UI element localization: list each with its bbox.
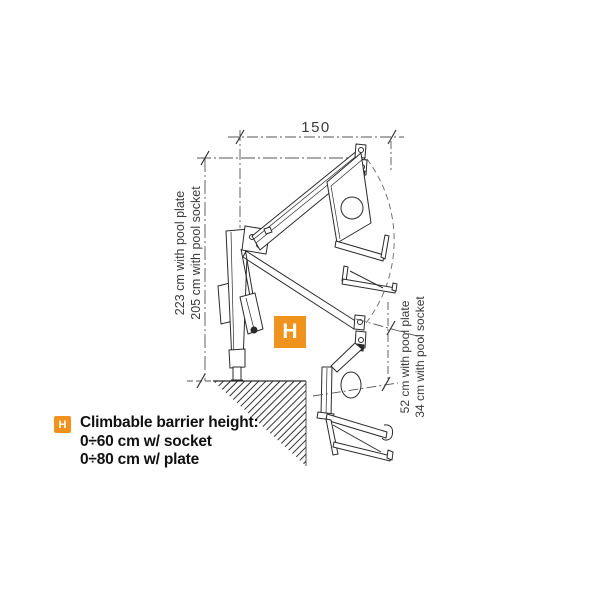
seat-rotation-arc bbox=[362, 159, 394, 328]
legend: H Climbable barrier height: 0÷60 cm w/ s… bbox=[54, 414, 258, 470]
dimension-150-label: 150 bbox=[301, 119, 331, 136]
pool-lift-technical-drawing: 150 223 cm with pool plate 205 cm with p… bbox=[0, 0, 600, 600]
left-dimension-socket-label: 205 cm with pool socket bbox=[189, 186, 203, 320]
legend-marker-letter: H bbox=[59, 419, 67, 431]
left-dimension-plate-label: 223 cm with pool plate bbox=[173, 191, 187, 315]
seat-back-hole-lowered bbox=[341, 372, 361, 398]
barrier-height-marker-letter: H bbox=[282, 320, 297, 344]
drawing-svg: 150 223 cm with pool plate 205 cm with p… bbox=[0, 0, 600, 600]
legend-line-plate: 0÷80 cm w/ plate bbox=[80, 451, 258, 470]
legend-marker-box: H bbox=[54, 416, 71, 433]
legend-line-socket: 0÷60 cm w/ socket bbox=[80, 433, 258, 452]
seat-back-hole-raised bbox=[341, 197, 363, 219]
right-dimension-plate-label: 52 cm with pool plate bbox=[398, 300, 412, 413]
dimension-labels: 150 223 cm with pool plate 205 cm with p… bbox=[173, 119, 427, 418]
barrier-height-marker: H bbox=[274, 316, 306, 348]
seat-raised bbox=[327, 153, 397, 293]
legend-title: Climbable barrier height: bbox=[80, 414, 258, 433]
seat-lowered bbox=[317, 343, 393, 461]
right-dimension-socket-label: 34 cm with pool socket bbox=[413, 296, 427, 418]
legend-text: Climbable barrier height: 0÷60 cm w/ soc… bbox=[80, 414, 258, 470]
